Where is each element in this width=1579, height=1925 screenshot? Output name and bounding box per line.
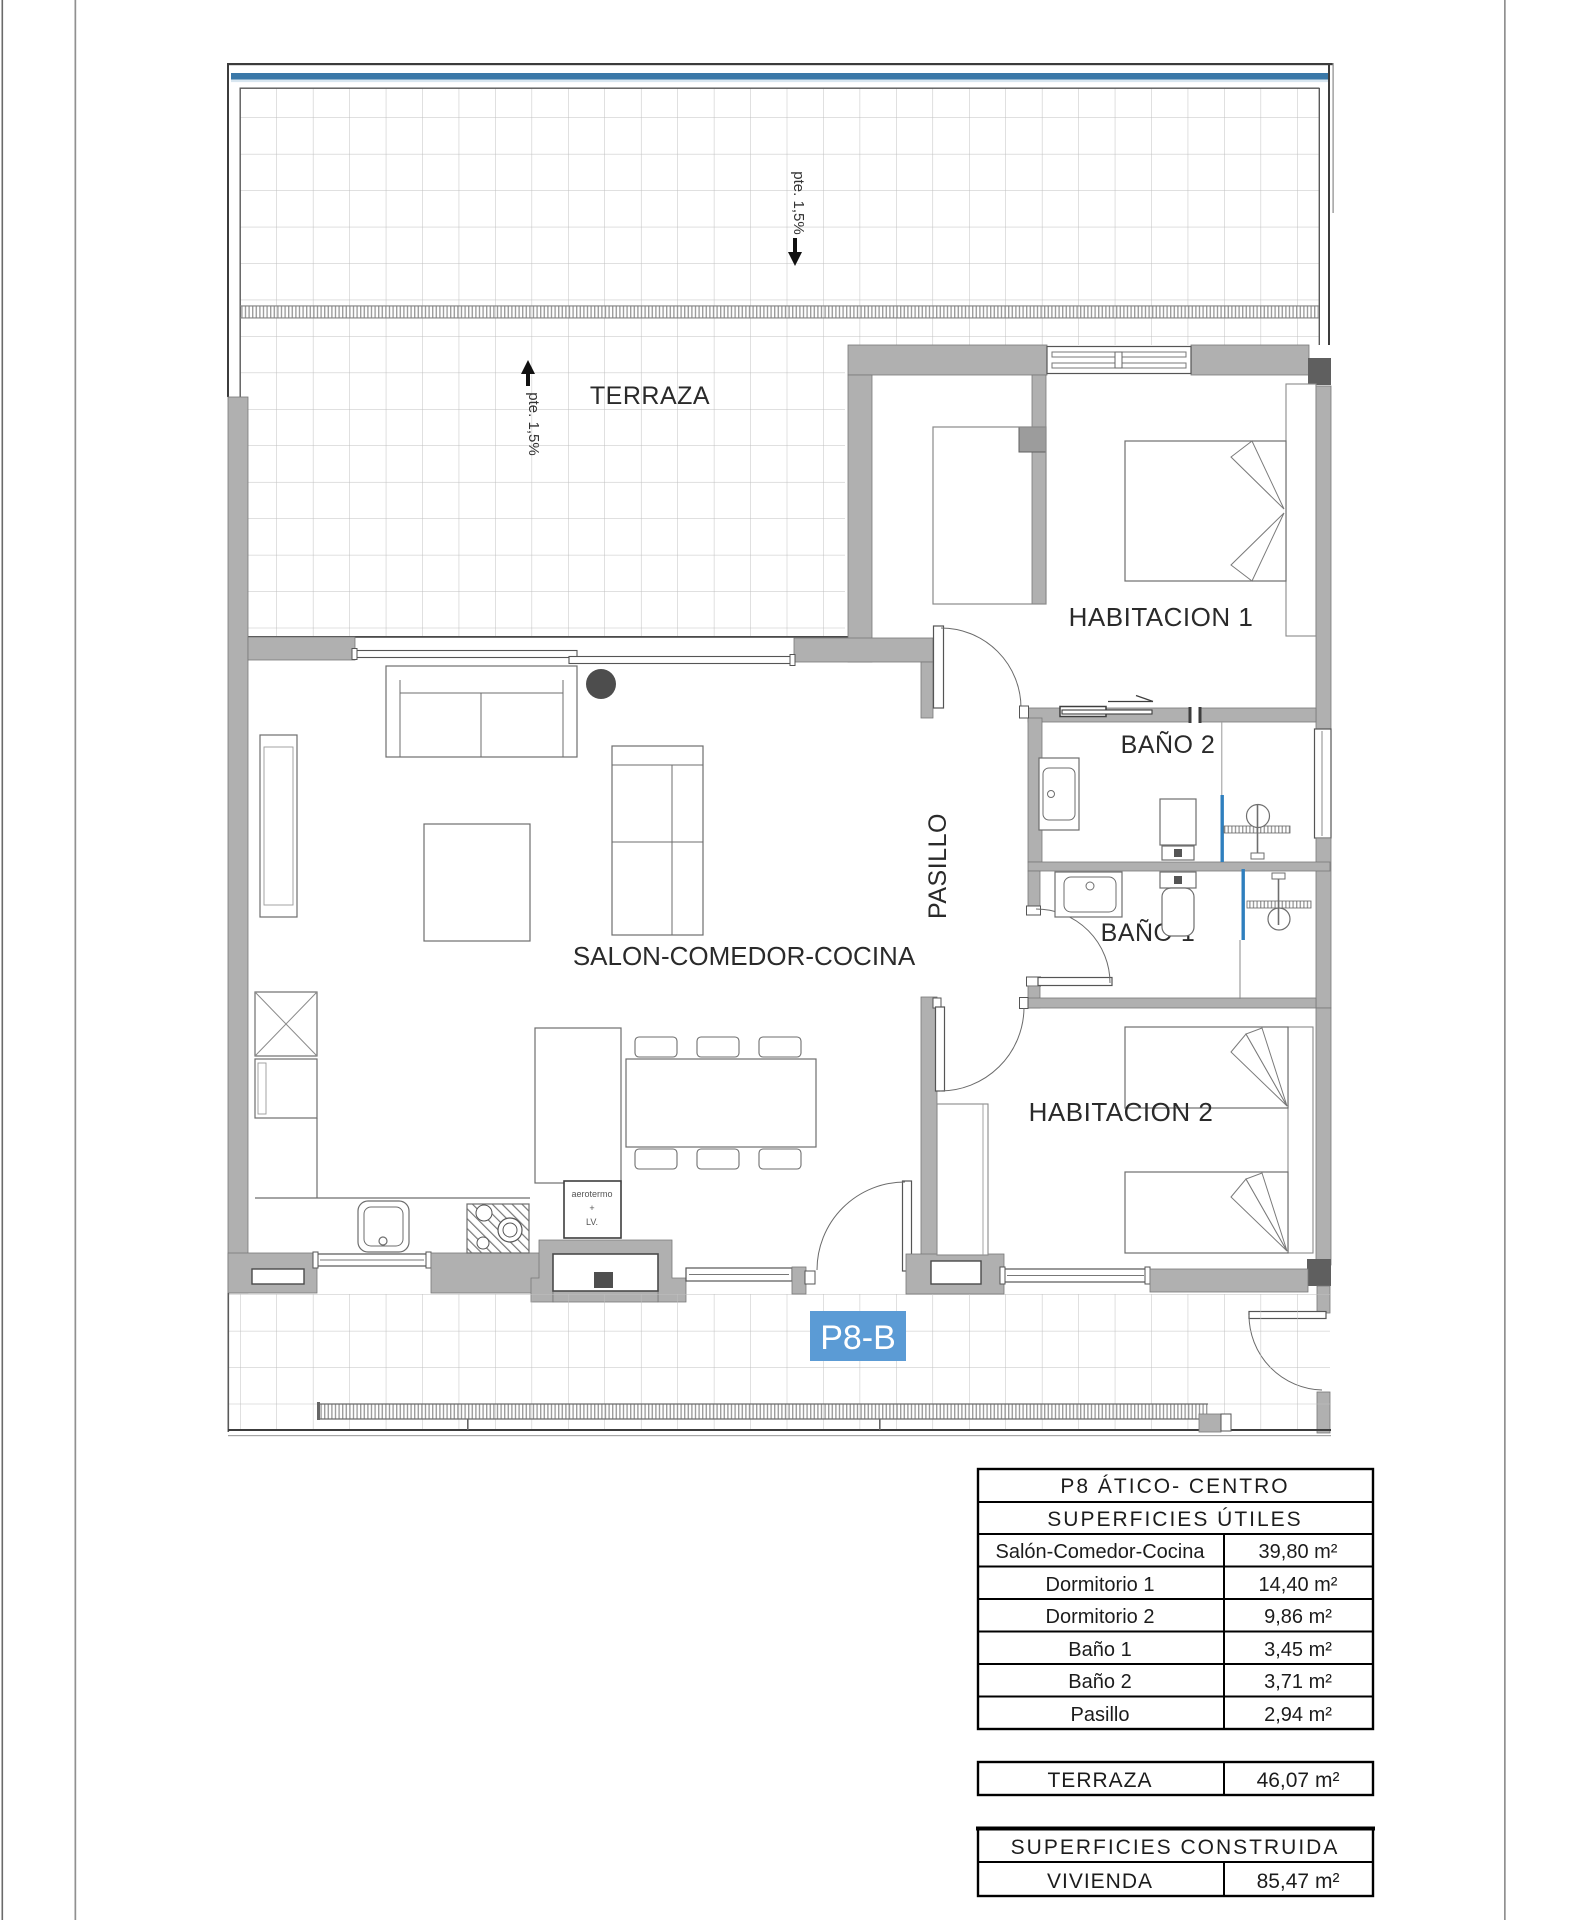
svg-text:Dormitorio 1: Dormitorio 1 [1046,1574,1155,1596]
svg-text:39,80 m²: 39,80 m² [1259,1541,1338,1563]
svg-text:SALON-COMEDOR-COCINA: SALON-COMEDOR-COCINA [573,941,916,971]
svg-text:SUPERFICIES CONSTRUIDA: SUPERFICIES CONSTRUIDA [1011,1836,1340,1859]
svg-text:3,45 m²: 3,45 m² [1264,1639,1332,1661]
svg-text:Baño 2: Baño 2 [1068,1671,1131,1693]
svg-text:pte. 1,5%: pte. 1,5% [525,392,542,455]
svg-text:9,86 m²: 9,86 m² [1264,1606,1332,1628]
svg-text:Baño 1: Baño 1 [1068,1639,1131,1661]
svg-text:+: + [589,1203,594,1213]
svg-text:LV.: LV. [586,1217,598,1227]
svg-text:HABITACION 1: HABITACION 1 [1069,602,1254,632]
svg-text:Pasillo: Pasillo [1071,1704,1130,1726]
svg-text:PASILLO: PASILLO [924,813,952,919]
svg-text:SUPERFICIES ÚTILES: SUPERFICIES ÚTILES [1047,1508,1302,1531]
svg-text:3,71 m²: 3,71 m² [1264,1671,1332,1693]
svg-text:85,47 m²: 85,47 m² [1257,1870,1340,1893]
svg-text:P8-B: P8-B [820,1319,896,1357]
svg-text:2,94 m²: 2,94 m² [1264,1704,1332,1726]
svg-text:Salón-Comedor-Cocina: Salón-Comedor-Cocina [996,1541,1206,1563]
svg-text:pte. 1,5%: pte. 1,5% [790,171,807,234]
svg-text:BAÑO 2: BAÑO 2 [1121,730,1216,759]
svg-text:46,07 m²: 46,07 m² [1257,1769,1340,1792]
svg-text:P8 ÁTICO- CENTRO: P8 ÁTICO- CENTRO [1060,1475,1289,1498]
svg-text:HABITACION 2: HABITACION 2 [1029,1097,1214,1127]
svg-text:TERRAZA: TERRAZA [1047,1769,1152,1792]
svg-text:aerotermo: aerotermo [571,1189,612,1199]
svg-text:14,40 m²: 14,40 m² [1259,1574,1338,1596]
svg-text:Dormitorio 2: Dormitorio 2 [1046,1606,1155,1628]
svg-text:TERRAZA: TERRAZA [590,382,710,410]
svg-text:VIVIENDA: VIVIENDA [1047,1870,1153,1893]
